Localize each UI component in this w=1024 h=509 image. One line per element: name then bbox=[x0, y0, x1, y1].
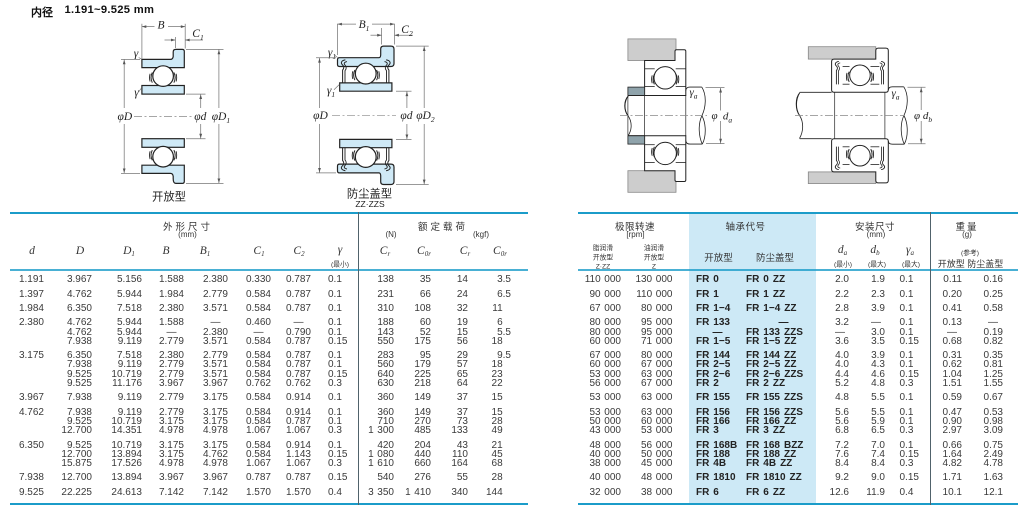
svg-text:φ: φ bbox=[914, 110, 920, 122]
svg-text:ZZ·ZZS: ZZ·ZZS bbox=[355, 199, 385, 209]
svg-text:γ: γ bbox=[134, 48, 139, 60]
svg-text:γ1: γ1 bbox=[328, 47, 336, 61]
svg-text:B1: B1 bbox=[359, 19, 370, 33]
svg-text:φD1: φD1 bbox=[212, 111, 230, 125]
svg-text:φD: φD bbox=[313, 110, 328, 122]
svg-text:开放型: 开放型 bbox=[152, 190, 186, 204]
svg-text:B: B bbox=[157, 19, 164, 31]
svg-text:φd: φd bbox=[400, 110, 412, 122]
svg-text:φD2: φD2 bbox=[416, 110, 435, 124]
svg-text:C2: C2 bbox=[401, 24, 413, 38]
svg-text:γ: γ bbox=[134, 87, 139, 99]
svg-text:φ: φ bbox=[711, 110, 717, 122]
svg-text:γa: γa bbox=[689, 87, 697, 101]
svg-text:φd: φd bbox=[194, 111, 206, 123]
svg-text:γ1: γ1 bbox=[327, 85, 335, 99]
svg-text:φD: φD bbox=[117, 111, 132, 123]
svg-text:da: da bbox=[723, 110, 733, 124]
svg-text:db: db bbox=[923, 110, 933, 124]
svg-text:γa: γa bbox=[891, 88, 899, 102]
svg-text:C1: C1 bbox=[192, 28, 203, 42]
